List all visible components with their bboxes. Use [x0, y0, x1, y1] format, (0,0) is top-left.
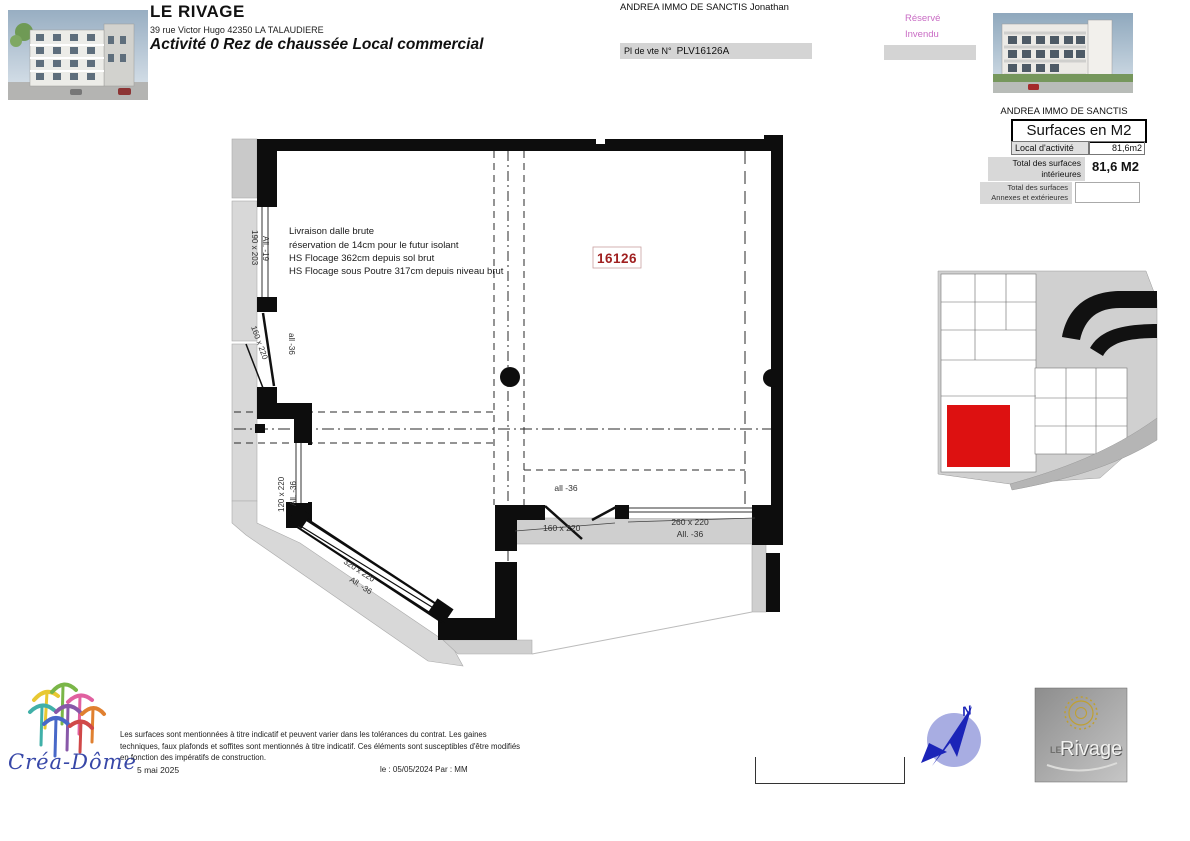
note-line-2: réservation de 14cm pour le futur isolan…	[289, 240, 459, 251]
disclaimer-line2: techniques, faux plafonds et soffites so…	[120, 741, 640, 753]
dim-window-left-top-allege: All. -19	[261, 236, 270, 261]
crea-dome-logo-text: Créa-Dôme	[8, 750, 137, 774]
surfaces-row-value: 81,6m2	[1089, 141, 1145, 155]
dim-window-left-bottom: 120 x 220	[277, 476, 286, 512]
plan-sheet: 16126 Livraison dalle brute réservation …	[0, 0, 1190, 841]
disclaimer-line1: Les surfaces sont mentionnées à titre in…	[120, 729, 640, 741]
surfaces-annex-line1: Total des surfaces	[982, 183, 1068, 193]
crea-dome-logo-figures	[30, 684, 104, 756]
lerivage-logo-main: Rivage	[1060, 738, 1122, 760]
sale-plan-label: Pl de vte N°	[624, 46, 672, 56]
surfaces-annex-value-cell	[1075, 182, 1140, 203]
legend-reserved: Réservé	[905, 13, 940, 24]
legend-unsold: Invendu	[905, 29, 939, 40]
plan-date: 5 mai 2025	[137, 765, 179, 775]
compass-north-label: N	[961, 702, 974, 719]
building-photo-left	[8, 10, 148, 100]
surfaces-total-value: 81,6 M2	[1092, 159, 1147, 174]
surfaces-annex-line2: Annexes et extérieures	[982, 193, 1068, 203]
page-title: LE RIVAGE	[150, 2, 245, 22]
key-plan-inset	[938, 271, 1157, 490]
legend-status-bar	[884, 45, 976, 60]
revision-note: le : 05/05/2024 Par : MM	[380, 765, 468, 774]
address-line: 39 rue Victor Hugo 42350 LA TALAUDIERE	[150, 25, 324, 35]
unit-subtitle: Activité 0 Rez de chaussée Local commerc…	[150, 36, 483, 54]
surfaces-annex-label: Total des surfaces Annexes et extérieure…	[980, 182, 1072, 204]
dim-window-bottom-allege: All. -36	[677, 529, 704, 539]
unit-number-box: 16126	[593, 247, 641, 268]
agent-name: ANDREA IMMO DE SANCTIS Jonathan	[620, 2, 789, 13]
signature-box	[755, 757, 905, 784]
column-round	[500, 367, 520, 387]
surfaces-total-label: Total des surfaces intérieures	[988, 157, 1085, 181]
dim-window-left-bottom-allege: All. -36	[289, 481, 298, 506]
dim-opening-bottom-allege: all -36	[554, 483, 577, 493]
sale-plan-number: PLV16126A	[677, 46, 730, 57]
dim-window-left-top: 190 x 203	[250, 230, 259, 266]
panel-company: ANDREA IMMO DE SANCTIS	[993, 106, 1135, 117]
compass-icon: N	[921, 702, 981, 767]
lerivage-logo: LE Rivage Rivage	[1035, 688, 1127, 782]
dim-door-left-allege: all -36	[287, 333, 296, 355]
dim-window-bottom: 260 x 220	[671, 517, 709, 527]
plan-walls	[255, 135, 783, 640]
surfaces-title-box: Surfaces en M2	[1011, 119, 1147, 143]
note-line-3: HS Flocage 362cm depuis sol brut	[289, 253, 435, 264]
surfaces-total-label-line2: intérieures	[988, 169, 1081, 180]
key-plan-unit-highlight	[947, 405, 1010, 467]
unit-number: 16126	[597, 251, 637, 266]
disclaimer: Les surfaces sont mentionnées à titre in…	[120, 729, 640, 764]
surfaces-total-label-line1: Total des surfaces	[988, 158, 1081, 169]
building-photo-right	[993, 13, 1133, 93]
note-line-1: Livraison dalle brute	[289, 226, 374, 237]
disclaimer-line3: en fonction des impératifs de constructi…	[120, 752, 640, 764]
dim-door-bottom: 160 x 220	[543, 523, 581, 533]
column-wall	[763, 369, 781, 387]
plan-notes: Livraison dalle brute réservation de 14c…	[289, 226, 504, 277]
note-line-4: HS Flocage sous Poutre 317cm depuis nive…	[289, 266, 504, 277]
surfaces-row-label: Local d'activité	[1011, 141, 1089, 155]
sale-plan-bar: Pl de vte N° PLV16126A	[620, 43, 812, 59]
